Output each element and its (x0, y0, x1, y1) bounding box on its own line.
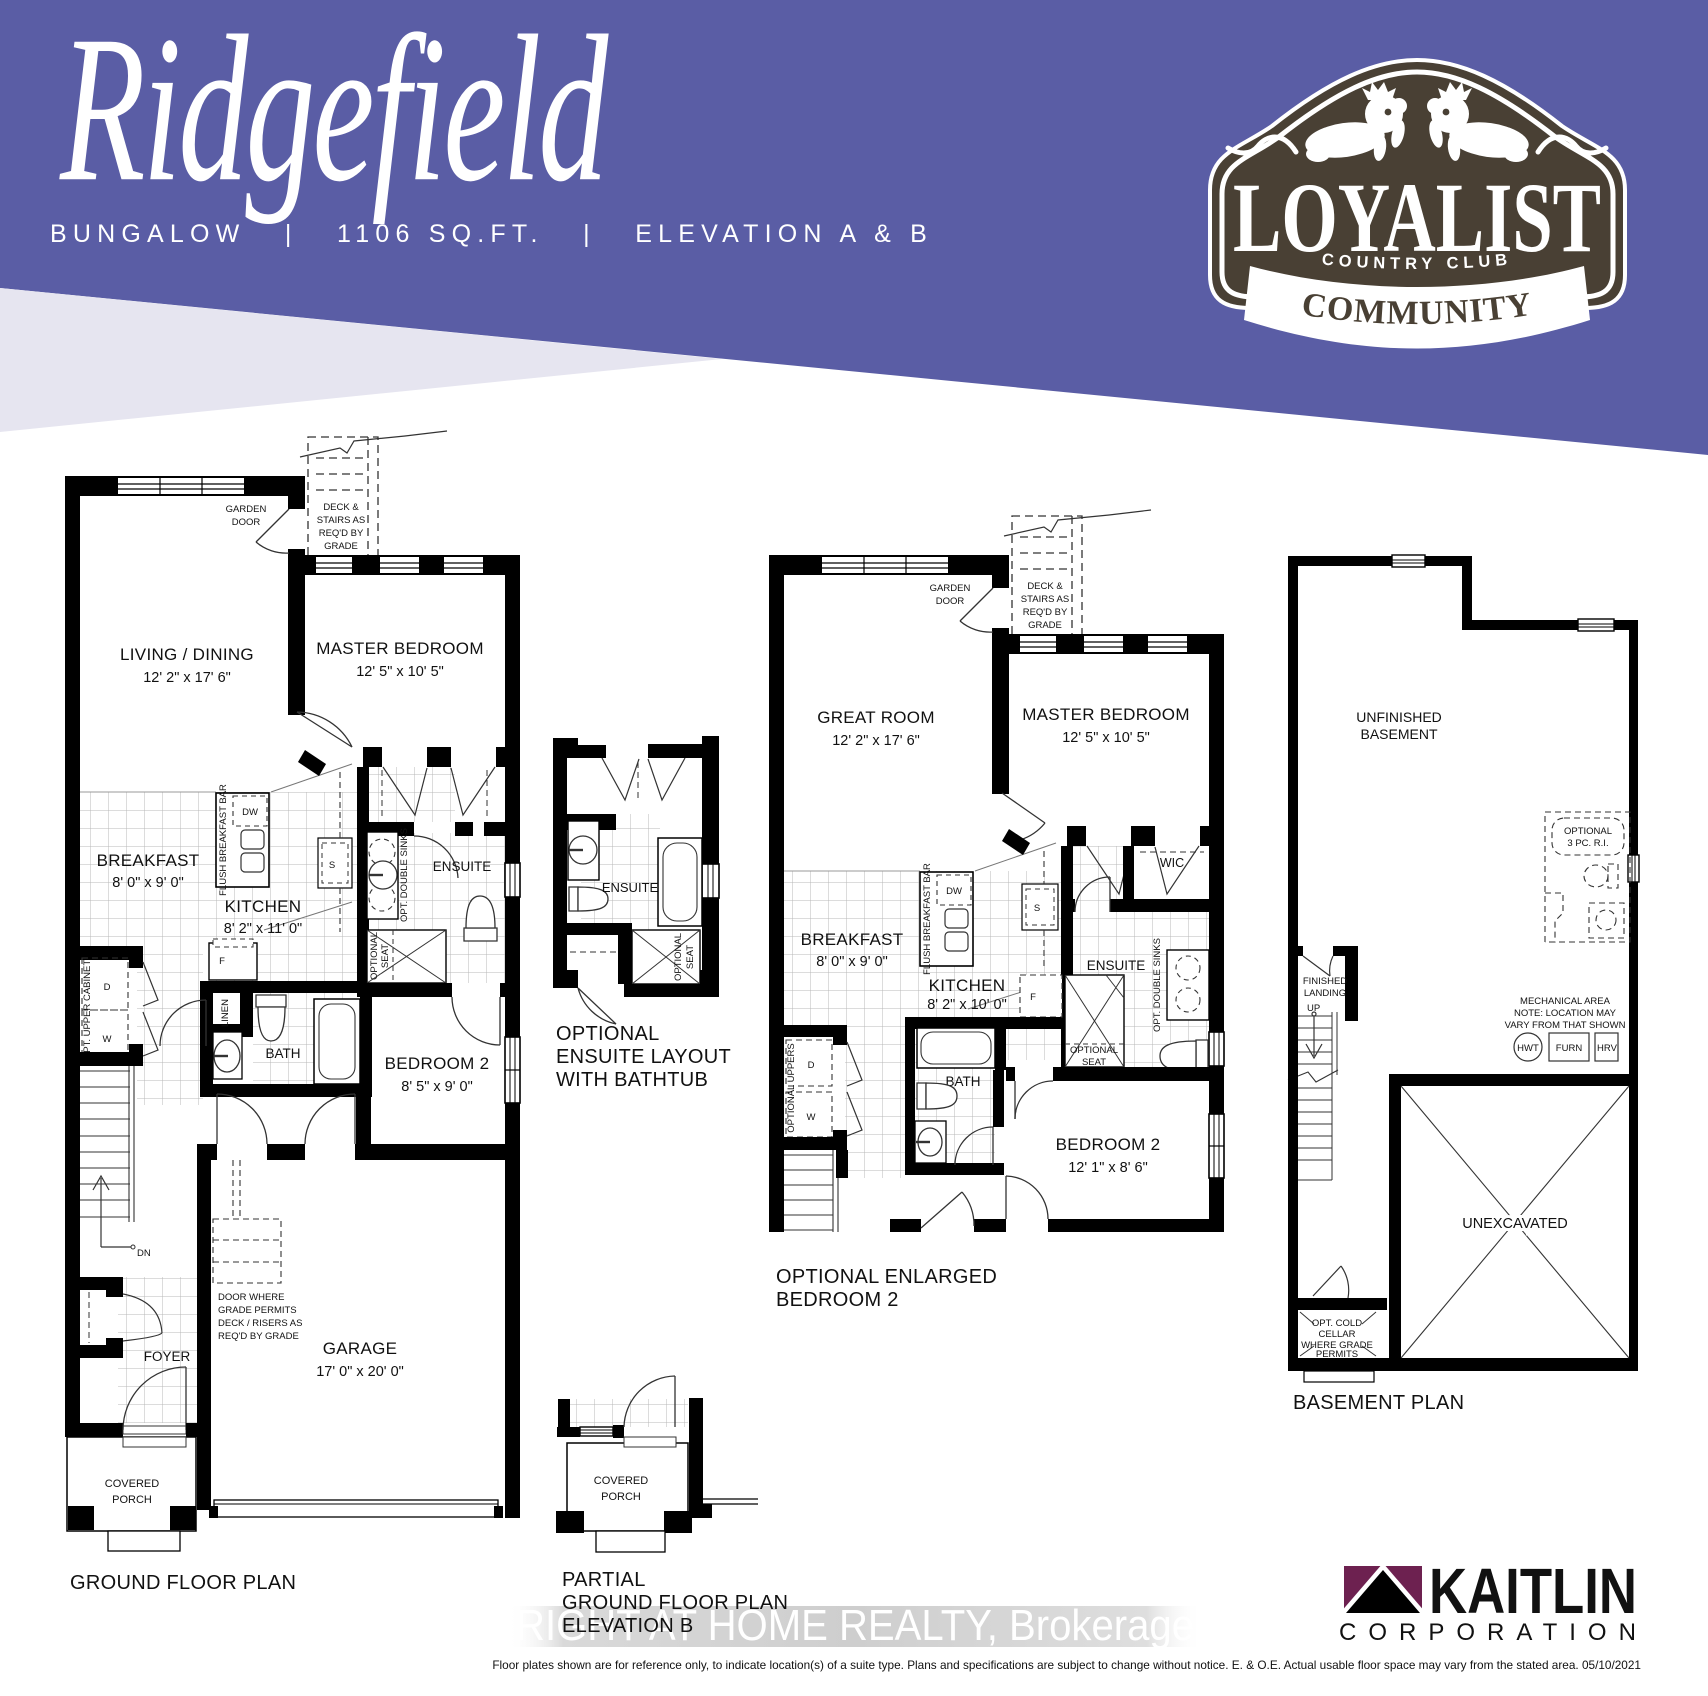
svg-text:D: D (808, 1060, 815, 1071)
svg-text:OPTIONAL UPPERS: OPTIONAL UPPERS (786, 1043, 797, 1132)
svg-text:BEDROOM 2: BEDROOM 2 (1056, 1135, 1161, 1154)
svg-text:FOYER: FOYER (144, 1349, 191, 1364)
svg-text:GRADE PERMITS: GRADE PERMITS (218, 1305, 297, 1316)
svg-text:DECK / RISERS AS: DECK / RISERS AS (218, 1318, 302, 1329)
svg-text:DOOR: DOOR (232, 517, 261, 528)
svg-text:DOOR WHERE: DOOR WHERE (218, 1292, 285, 1303)
svg-text:HWT: HWT (1517, 1043, 1539, 1054)
svg-text:OPTIONAL ENLARGED: OPTIONAL ENLARGED (776, 1266, 997, 1288)
svg-text:OPTIONAL: OPTIONAL (1564, 826, 1612, 837)
svg-text:8' 2" x 11' 0": 8' 2" x 11' 0" (224, 921, 302, 937)
svg-text:8' 0" x 9' 0": 8' 0" x 9' 0" (112, 875, 183, 891)
svg-text:PORCH: PORCH (112, 1494, 152, 1506)
svg-text:FINISHED: FINISHED (1303, 976, 1347, 987)
svg-text:FLUSH BREAKFAST BAR: FLUSH BREAKFAST BAR (922, 863, 933, 975)
svg-text:BATH: BATH (265, 1046, 300, 1061)
svg-text:OPTIONAL: OPTIONAL (1070, 1045, 1118, 1056)
svg-text:COVERED: COVERED (594, 1475, 648, 1487)
svg-text:SEAT: SEAT (380, 944, 391, 968)
svg-text:BASEMENT PLAN: BASEMENT PLAN (1293, 1392, 1464, 1414)
svg-text:OPTIONAL: OPTIONAL (369, 932, 380, 980)
svg-text:8' 2" x 10' 0": 8' 2" x 10' 0" (927, 997, 1007, 1013)
svg-text:PERMITS: PERMITS (1316, 1349, 1358, 1360)
svg-text:SEAT: SEAT (1082, 1057, 1106, 1068)
svg-text:DECK &: DECK & (323, 502, 359, 513)
svg-text:VARY FROM THAT SHOWN: VARY FROM THAT SHOWN (1505, 1020, 1626, 1031)
svg-text:OPT. UPPER CABINET: OPT. UPPER CABINET (82, 960, 93, 1060)
svg-text:OPT. DOUBLE SINKS: OPT. DOUBLE SINKS (1152, 938, 1163, 1032)
svg-text:GREAT ROOM: GREAT ROOM (817, 708, 935, 727)
svg-text:MECHANICAL AREA: MECHANICAL AREA (1520, 996, 1611, 1007)
svg-text:ENSUITE LAYOUT: ENSUITE LAYOUT (556, 1046, 731, 1068)
svg-text:BREAKFAST: BREAKFAST (801, 930, 904, 949)
svg-text:DN: DN (137, 1248, 151, 1259)
svg-text:GARDEN: GARDEN (226, 504, 267, 515)
svg-text:BEDROOM 2: BEDROOM 2 (385, 1054, 490, 1073)
svg-text:SEAT: SEAT (685, 945, 696, 969)
svg-text:MASTER BEDROOM: MASTER BEDROOM (1022, 705, 1190, 724)
svg-text:S: S (329, 860, 335, 871)
svg-text:WITH BATHTUB: WITH BATHTUB (556, 1069, 708, 1091)
svg-text:ENSUITE: ENSUITE (602, 880, 659, 895)
svg-text:STAIRS AS: STAIRS AS (317, 515, 365, 526)
svg-text:DOOR: DOOR (936, 596, 965, 607)
svg-text:Ridgefield: Ridgefield (59, 0, 609, 225)
svg-text:8' 5" x 9' 0": 8' 5" x 9' 0" (401, 1079, 472, 1095)
svg-text:CORPORATION: CORPORATION (1339, 1619, 1648, 1646)
svg-text:GROUND FLOOR PLAN: GROUND FLOOR PLAN (70, 1572, 296, 1594)
svg-text:GRADE: GRADE (324, 541, 358, 552)
svg-text:PARTIAL: PARTIAL (562, 1569, 646, 1591)
svg-text:GARDEN: GARDEN (930, 583, 971, 594)
svg-text:STAIRS AS: STAIRS AS (1021, 594, 1069, 605)
svg-text:DW: DW (242, 807, 258, 818)
svg-text:17' 0" x 20' 0": 17' 0" x 20' 0" (316, 1364, 404, 1380)
svg-text:OPT. DOUBLE SINKS: OPT. DOUBLE SINKS (399, 828, 410, 922)
svg-text:OPT. COLD: OPT. COLD (1312, 1318, 1362, 1329)
svg-text:CELLAR: CELLAR (1319, 1329, 1356, 1340)
svg-text:COVERED: COVERED (105, 1478, 159, 1490)
svg-text:NOTE: LOCATION MAY: NOTE: LOCATION MAY (1514, 1008, 1617, 1019)
svg-text:KAITLIN: KAITLIN (1429, 1555, 1637, 1627)
svg-text:Floor plates shown are for ref: Floor plates shown are for reference onl… (492, 1658, 1641, 1672)
svg-text:GROUND FLOOR PLAN: GROUND FLOOR PLAN (562, 1592, 788, 1614)
svg-text:LINEN: LINEN (220, 999, 231, 1027)
svg-text:8' 0" x 9' 0": 8' 0" x 9' 0" (816, 954, 887, 970)
svg-text:12' 2" x 17' 6": 12' 2" x 17' 6" (832, 733, 920, 749)
svg-text:FURN: FURN (1556, 1043, 1583, 1054)
svg-text:D: D (104, 982, 111, 993)
svg-text:LIVING / DINING: LIVING / DINING (120, 645, 254, 664)
svg-text:OPTIONAL: OPTIONAL (556, 1023, 660, 1045)
svg-text:REQ'D BY: REQ'D BY (319, 528, 364, 539)
svg-text:UNEXCAVATED: UNEXCAVATED (1462, 1216, 1568, 1232)
svg-text:WIC: WIC (1160, 856, 1184, 870)
svg-text:LANDING: LANDING (1304, 988, 1346, 999)
svg-text:DECK &: DECK & (1027, 581, 1063, 592)
svg-text:F: F (1030, 992, 1036, 1003)
svg-text:DW: DW (946, 886, 962, 897)
svg-text:BEDROOM 2: BEDROOM 2 (776, 1289, 899, 1311)
svg-text:12' 1" x 8' 6": 12' 1" x 8' 6" (1068, 1160, 1148, 1176)
svg-text:PORCH: PORCH (601, 1491, 641, 1503)
svg-text:3 PC. R.I.: 3 PC. R.I. (1567, 838, 1608, 849)
svg-text:OPTIONAL: OPTIONAL (673, 933, 684, 981)
svg-text:ENSUITE: ENSUITE (1087, 958, 1146, 973)
svg-text:MASTER BEDROOM: MASTER BEDROOM (316, 639, 484, 658)
svg-text:ELEVATION B: ELEVATION B (562, 1615, 693, 1637)
svg-text:BASEMENT: BASEMENT (1360, 726, 1437, 742)
svg-text:REQ'D BY GRADE: REQ'D BY GRADE (218, 1331, 299, 1342)
svg-text:KITCHEN: KITCHEN (929, 976, 1006, 995)
svg-text:BREAKFAST: BREAKFAST (97, 851, 200, 870)
svg-text:KITCHEN: KITCHEN (225, 897, 302, 916)
svg-text:12' 5" x 10' 5": 12' 5" x 10' 5" (1062, 730, 1150, 746)
svg-text:S: S (1034, 903, 1040, 914)
svg-text:UNFINISHED: UNFINISHED (1356, 709, 1442, 725)
svg-text:FLUSH BREAKFAST BAR: FLUSH BREAKFAST BAR (218, 784, 229, 896)
svg-text:W: W (103, 1034, 112, 1045)
svg-text:REQ'D BY: REQ'D BY (1023, 607, 1068, 618)
svg-text:F: F (219, 956, 225, 967)
svg-text:W: W (807, 1112, 816, 1123)
svg-text:12' 2" x 17' 6": 12' 2" x 17' 6" (143, 670, 231, 686)
svg-text:12' 5" x 10' 5": 12' 5" x 10' 5" (356, 664, 444, 680)
svg-text:GARAGE: GARAGE (323, 1339, 398, 1358)
svg-text:ENSUITE: ENSUITE (433, 859, 492, 874)
svg-text:HRV: HRV (1597, 1043, 1618, 1054)
svg-text:GRADE: GRADE (1028, 620, 1062, 631)
svg-text:BUNGALOW | 1106 SQ.FT. |: BUNGALOW | 1106 SQ.FT. | ELEVATION A & B (50, 220, 933, 248)
